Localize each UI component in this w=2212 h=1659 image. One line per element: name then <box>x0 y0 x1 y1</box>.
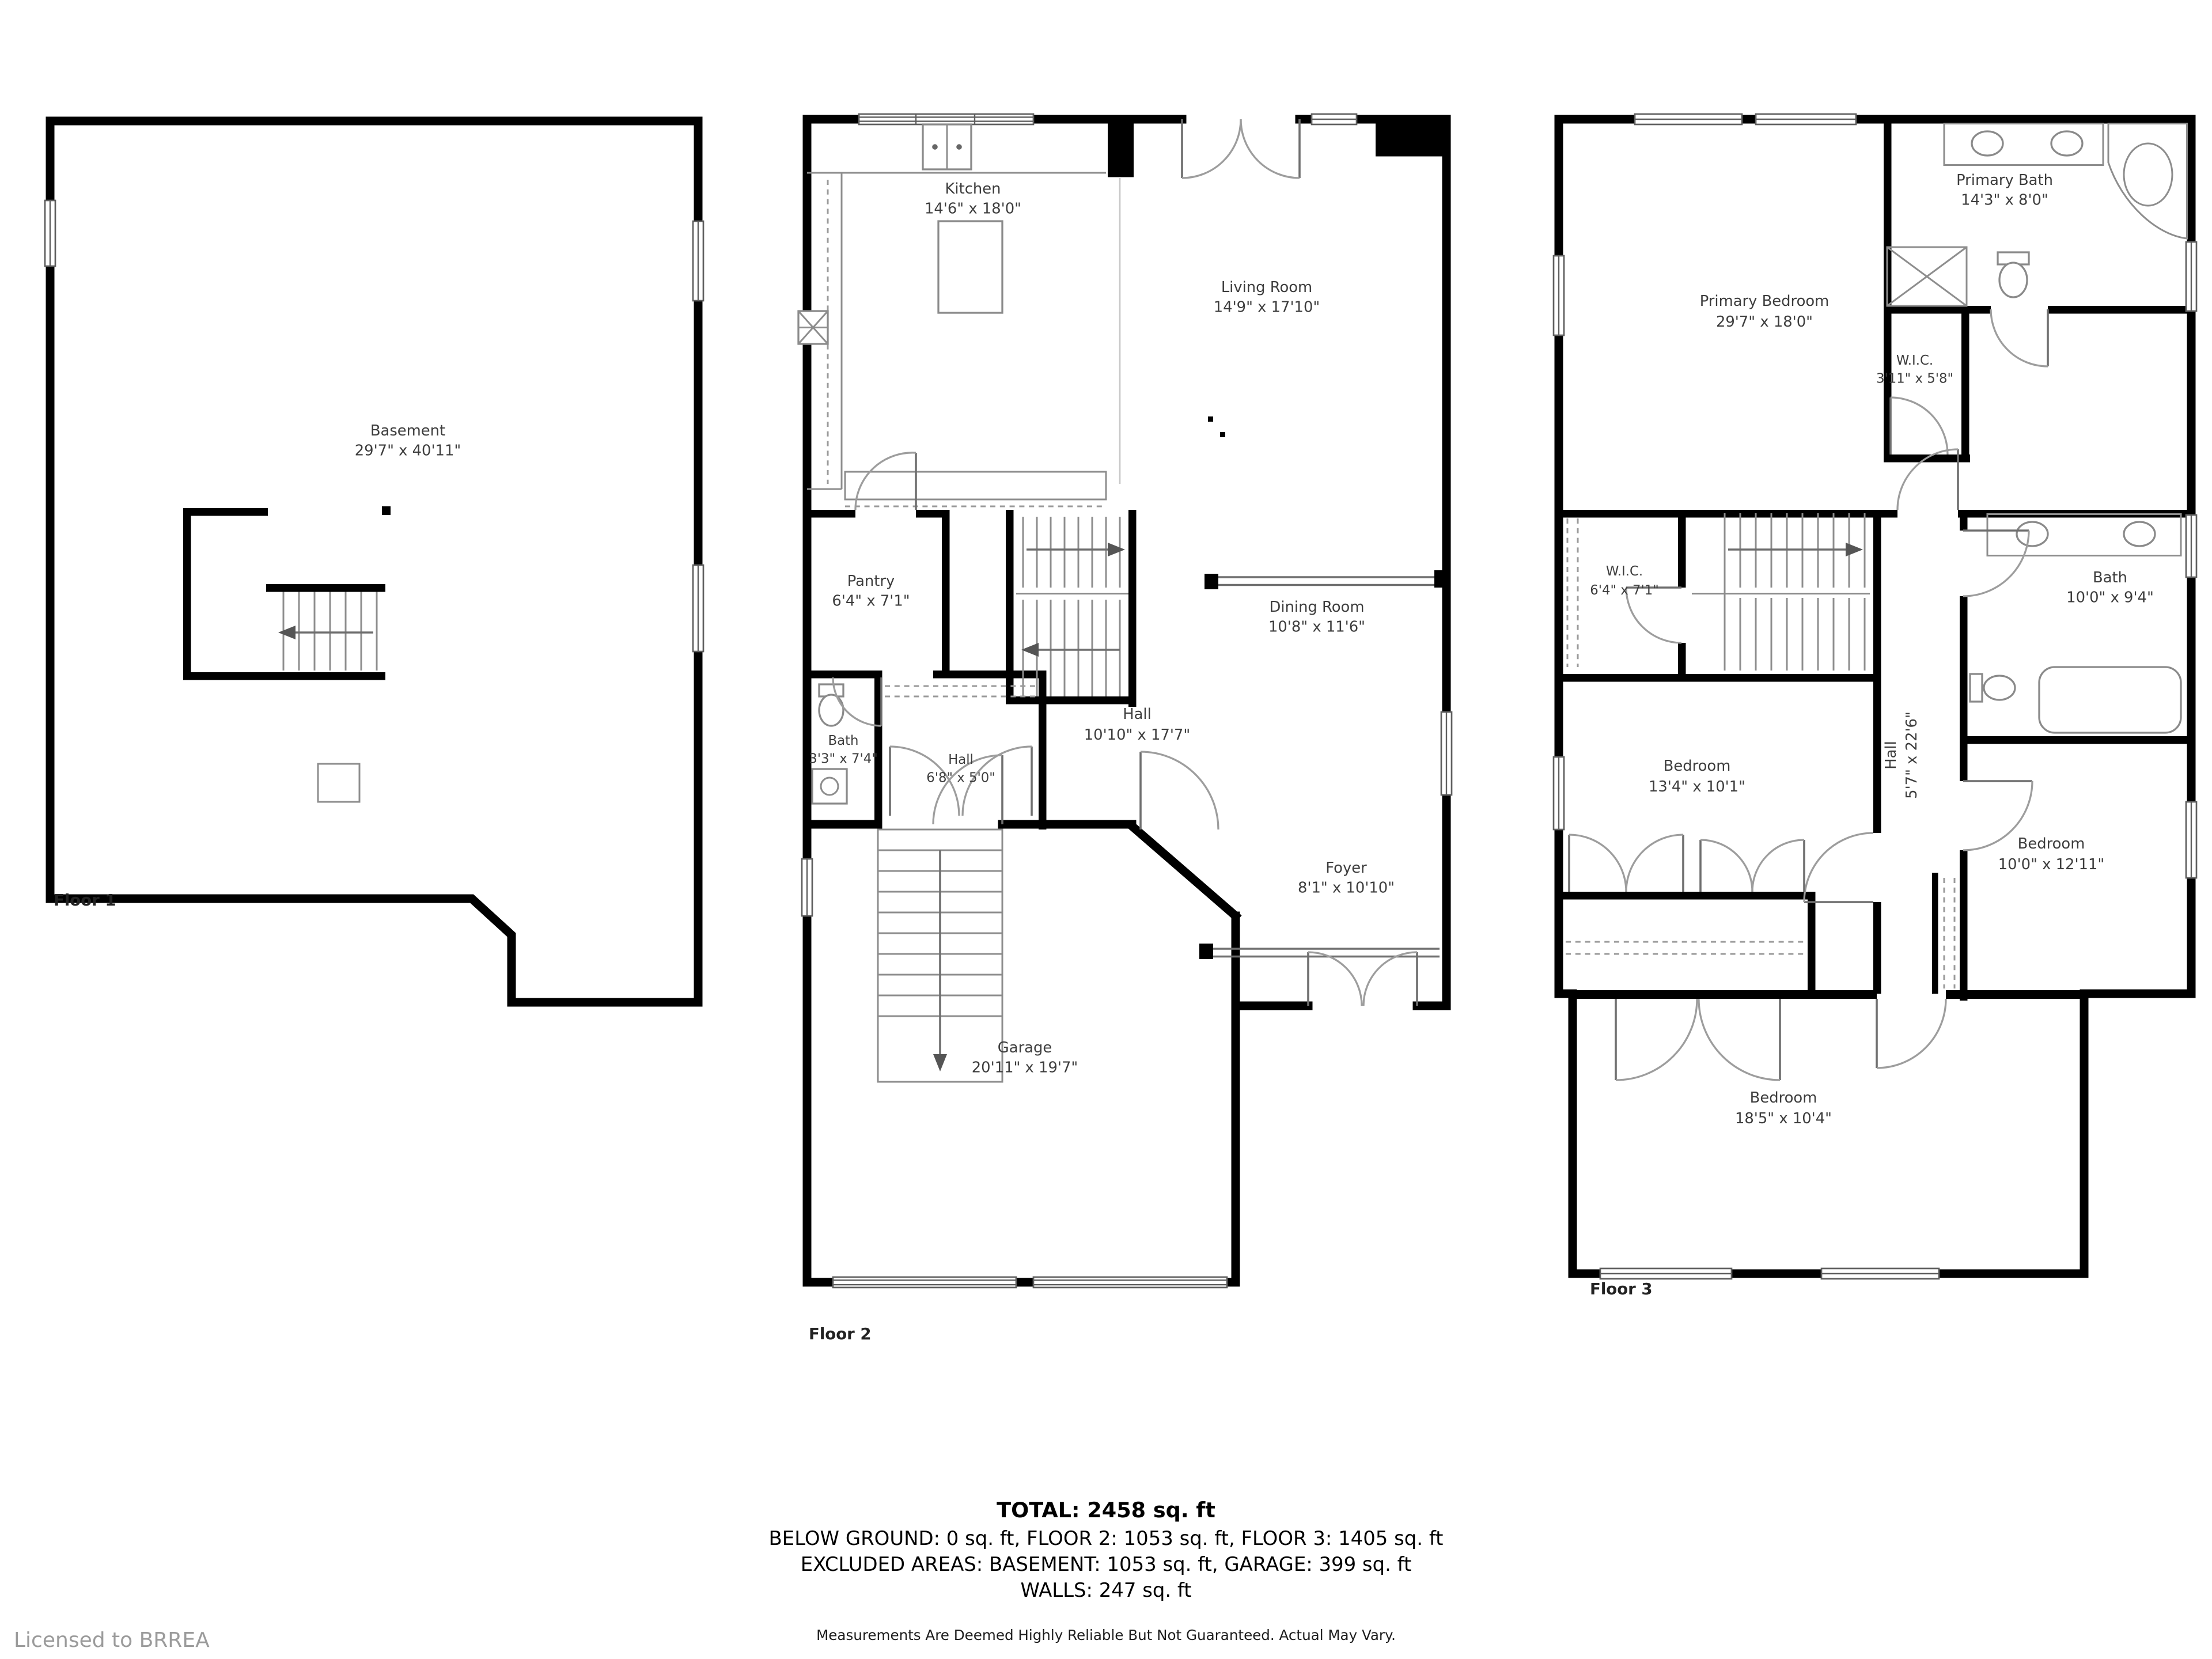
room-label: Hall <box>1883 741 1900 770</box>
floor-3-plan: Primary Bath 14'3" x 8'0" Primary Bedroo… <box>1554 114 2196 1298</box>
room-dims: 3'3" x 7'4" <box>809 752 878 767</box>
room-label: Hall <box>948 752 974 767</box>
floor-3-label: Floor 3 <box>1590 1279 1653 1298</box>
floor-3-stairs <box>1692 513 1870 671</box>
wic-closet-rod <box>1567 518 1578 667</box>
floor-1-plan: Basement 29'7" x 40'11" Floor 1 <box>45 121 703 1002</box>
summary-block: TOTAL: 2458 sq. ft BELOW GROUND: 0 sq. f… <box>769 1498 1444 1643</box>
room-dims: 8'1" x 10'10" <box>1298 880 1395 897</box>
room-dims: 29'7" x 40'11" <box>355 442 461 460</box>
room-label: Kitchen <box>945 180 1001 198</box>
summary-total: TOTAL: 2458 sq. ft <box>997 1498 1215 1522</box>
shower-symbol <box>1887 247 1967 306</box>
room-label: Bath <box>2093 569 2127 586</box>
bath-vanity <box>1987 514 2181 556</box>
room-dims: 10'0" x 12'11" <box>1998 856 2104 873</box>
summary-walls: WALLS: 247 sq. ft <box>1020 1579 1191 1601</box>
room-dims: 6'4" x 7'1" <box>1590 583 1659 598</box>
room-label: Living Room <box>1221 279 1312 296</box>
room-label: Bedroom <box>2018 835 2085 853</box>
floor-1-outer-walls <box>50 121 698 1002</box>
basement-stairs <box>278 592 377 671</box>
room-dims: 6'8" x 5'0" <box>926 771 995 786</box>
room-dims: 13'4" x 10'1" <box>1649 778 1745 796</box>
hall-closet-rod <box>1944 878 1955 988</box>
corner-tub-symbol <box>2108 124 2187 239</box>
license-text: Licensed to BRREA <box>14 1628 210 1652</box>
room-dims: 10'10" x 17'7" <box>1084 726 1190 744</box>
floor-2-label: Floor 2 <box>809 1324 872 1343</box>
room-label: Bedroom <box>1750 1089 1817 1107</box>
room-dims: 10'8" x 11'6" <box>1268 619 1365 636</box>
kitchen-sink <box>923 124 971 169</box>
toilet-symbol <box>1970 674 2015 702</box>
summary-excluded: EXCLUDED AREAS: BASEMENT: 1053 sq. ft, G… <box>801 1553 1412 1575</box>
room-label: W.I.C. <box>1896 353 1933 368</box>
room-dims: 3'11" x 5'8" <box>1876 372 1953 387</box>
room-label: W.I.C. <box>1606 564 1643 579</box>
room-label: Pantry <box>847 573 895 590</box>
stove-symbol <box>798 311 828 344</box>
room-label: Garage <box>998 1039 1052 1056</box>
room-dims: 29'7" x 18'0" <box>1716 313 1813 331</box>
basement-stairwell <box>878 829 1002 1082</box>
room-dims: 20'11" x 19'7" <box>972 1059 1078 1077</box>
room-dims: 14'6" x 18'0" <box>925 200 1021 218</box>
toilet-symbol <box>819 684 843 726</box>
kitchen-desk <box>845 472 1106 506</box>
room-label: Primary Bath <box>1956 172 2053 189</box>
room-dims: 14'3" x 8'0" <box>1961 192 2048 209</box>
tub-symbol <box>2039 667 2181 733</box>
room-label: Dining Room <box>1270 599 1365 616</box>
room-label: Basement <box>370 422 445 440</box>
room-label: Foyer <box>1325 859 1367 877</box>
floor-plan-canvas: Basement 29'7" x 40'11" Floor 1 <box>0 0 2212 1659</box>
room-label: Bath <box>828 733 859 748</box>
floor-2-plan: Kitchen 14'6" x 18'0" Living Room 14'9" … <box>798 114 1452 1343</box>
basement-stair-walls <box>183 506 391 680</box>
kitchen-island <box>938 221 1002 313</box>
room-dims: 18'5" x 10'4" <box>1735 1110 1832 1127</box>
floor-1-label: Floor 1 <box>54 891 116 910</box>
floor-2-stairs <box>1016 517 1128 696</box>
primary-bath-vanity <box>1944 124 2103 165</box>
floor-plan-page: Basement 29'7" x 40'11" Floor 1 <box>0 0 2212 1659</box>
room-dims: 6'4" x 7'1" <box>832 593 910 610</box>
room-label: Hall <box>1123 706 1152 723</box>
room-label: Bedroom <box>1664 757 1731 775</box>
room-dims: 10'0" x 9'4" <box>2066 589 2154 607</box>
room-label: Primary Bedroom <box>1700 293 1830 310</box>
bedroom-closet-rod <box>1566 942 1804 954</box>
summary-disclaimer: Measurements Are Deemed Highly Reliable … <box>816 1627 1396 1643</box>
room-dims: 5'7" x 22'6" <box>1903 711 1921 799</box>
furnace-symbol <box>318 764 359 802</box>
toilet-symbol <box>1998 252 2029 297</box>
summary-breakdown: BELOW GROUND: 0 sq. ft, FLOOR 2: 1053 sq… <box>769 1527 1444 1550</box>
room-dims: 14'9" x 17'10" <box>1214 299 1320 316</box>
bath-sink-symbol <box>812 769 847 804</box>
